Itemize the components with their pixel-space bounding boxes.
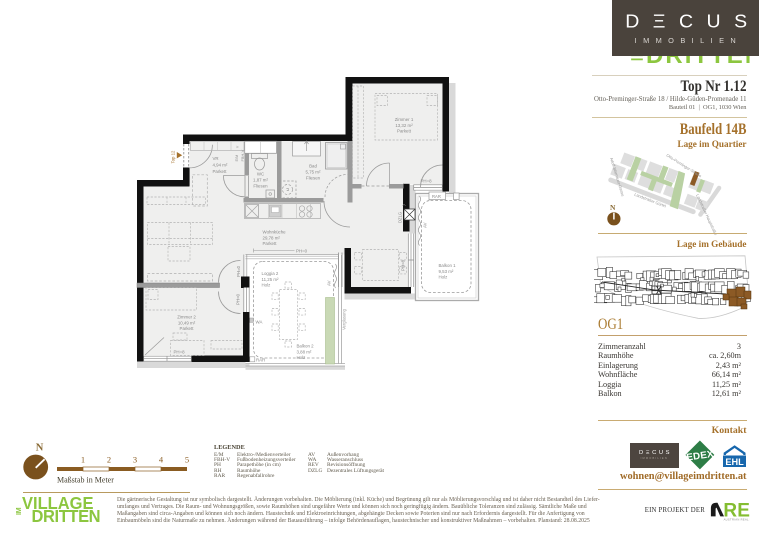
svg-text:WC: WC	[257, 172, 264, 177]
svg-text:PH=8: PH=8	[401, 259, 406, 271]
svg-text:PH=0: PH=0	[296, 249, 308, 254]
svg-text:Holz: Holz	[262, 283, 271, 288]
svg-text:Holz: Holz	[439, 275, 448, 280]
svg-text:Balkon 1: Balkon 1	[439, 263, 457, 268]
svg-text:FBH-V: FBH-V	[240, 149, 245, 161]
svg-text:RAR: RAR	[256, 358, 265, 363]
svg-text:Fliesen: Fliesen	[306, 176, 321, 181]
svg-text:DZLG: DZLG	[398, 212, 403, 223]
svg-text:1,87 m²: 1,87 m²	[253, 178, 268, 183]
svg-text:29,78 m²: 29,78 m²	[263, 235, 281, 240]
svg-text:Parkett: Parkett	[397, 129, 412, 134]
svg-text:Verglasung: Verglasung	[342, 308, 347, 330]
svg-text:VR: VR	[213, 156, 219, 161]
svg-text:11,25 m²: 11,25 m²	[262, 277, 280, 282]
svg-text:3: 3	[133, 455, 137, 465]
svg-text:Parkett: Parkett	[263, 241, 278, 246]
svg-text:5: 5	[185, 455, 189, 465]
svg-text:WA: WA	[256, 319, 263, 324]
svg-text:E/M: E/M	[234, 155, 239, 162]
svg-text:Zimmer 2: Zimmer 2	[177, 315, 196, 320]
svg-text:AUSTRIAN REAL ESTATE: AUSTRIAN REAL ESTATE	[724, 517, 750, 521]
svg-text:PH=0: PH=0	[236, 293, 241, 305]
svg-text:PH=0: PH=0	[236, 265, 241, 277]
svg-text:Maßstab in Meter: Maßstab in Meter	[57, 476, 114, 485]
svg-text:PH=8: PH=8	[174, 350, 186, 355]
svg-text:Bad: Bad	[309, 164, 317, 169]
svg-text:N: N	[610, 203, 616, 212]
svg-text:13,32 m²: 13,32 m²	[395, 123, 413, 128]
svg-text:AV: AV	[327, 280, 332, 286]
svg-text:Balkon 2: Balkon 2	[297, 344, 315, 349]
svg-text:EHL: EHL	[725, 457, 744, 467]
svg-text:2: 2	[107, 455, 111, 465]
svg-text:N: N	[36, 443, 44, 454]
svg-text:4,94 m²: 4,94 m²	[213, 162, 228, 167]
svg-text:Loggia 2: Loggia 2	[262, 271, 279, 276]
svg-text:Fliesen: Fliesen	[253, 184, 268, 189]
svg-text:9,53 m²: 9,53 m²	[439, 269, 454, 274]
svg-text:3,88 m²: 3,88 m²	[297, 349, 312, 354]
svg-text:10,49 m²: 10,49 m²	[178, 320, 196, 325]
svg-text:Parkett: Parkett	[180, 326, 195, 331]
svg-text:Top 12: Top 12	[171, 150, 176, 164]
svg-text:AV: AV	[423, 222, 428, 228]
svg-text:1: 1	[81, 455, 85, 465]
svg-text:PH=8: PH=8	[421, 179, 433, 184]
svg-text:>: >	[236, 145, 239, 150]
svg-text:5,75 m²: 5,75 m²	[306, 170, 321, 175]
svg-text:4: 4	[159, 455, 164, 465]
svg-text:Holz: Holz	[297, 355, 306, 360]
svg-text:Wohnküche: Wohnküche	[263, 230, 287, 235]
svg-text:RAR: RAR	[432, 194, 441, 199]
svg-text:Parkett: Parkett	[213, 169, 228, 174]
svg-text:Zimmer 1: Zimmer 1	[395, 117, 414, 122]
